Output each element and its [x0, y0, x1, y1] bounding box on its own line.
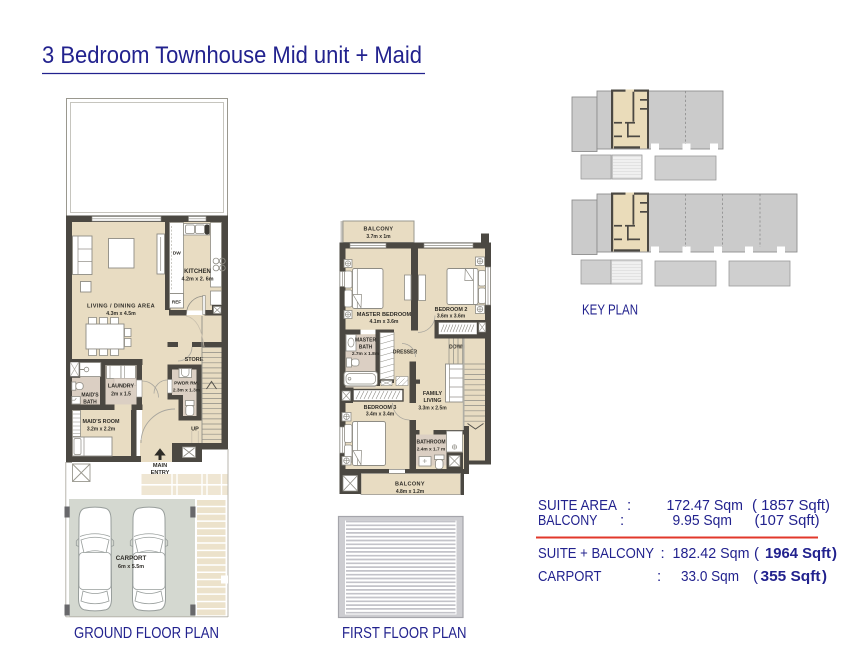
svg-text:): ) [822, 568, 827, 585]
svg-text:4.8m x 1.2m: 4.8m x 1.2m [396, 489, 425, 495]
svg-text:1964 Sqft: 1964 Sqft [765, 545, 831, 562]
svg-text:BEDROOM 3: BEDROOM 3 [364, 405, 397, 411]
svg-text:CARPORT: CARPORT [538, 568, 602, 585]
svg-text:355 Sqft: 355 Sqft [761, 568, 821, 585]
svg-text:4.1m x 3.6m: 4.1m x 3.6m [370, 319, 399, 325]
svg-text:(: ( [754, 545, 759, 562]
svg-text:9.95 Sqm: 9.95 Sqm [673, 512, 733, 529]
svg-text:3.4m x 3.4m: 3.4m x 3.4m [366, 412, 395, 418]
svg-text:LIVING: LIVING [424, 398, 442, 404]
svg-text::: : [657, 568, 661, 585]
svg-text:4.2m x 2. 6m: 4.2m x 2. 6m [181, 277, 213, 283]
svg-text:): ) [832, 545, 837, 562]
svg-text::: : [661, 545, 665, 562]
svg-text:DW: DW [173, 251, 181, 257]
svg-text:MASTER BEDROOM: MASTER BEDROOM [357, 312, 412, 318]
svg-text:FIRST FLOOR PLAN: FIRST FLOOR PLAN [342, 625, 467, 642]
svg-text:6m x 5.5m: 6m x 5.5m [118, 564, 144, 570]
svg-text:(107 Sqft): (107 Sqft) [755, 512, 820, 529]
svg-text:FAMILY: FAMILY [423, 391, 443, 397]
svg-text:LAUNDRY: LAUNDRY [108, 384, 135, 390]
svg-text:BATHROOM: BATHROOM [416, 440, 445, 446]
svg-text:4.3m x 4.5m: 4.3m x 4.5m [106, 311, 136, 317]
svg-text:MASTER: MASTER [355, 338, 377, 344]
svg-text:3.6m x 3.6m: 3.6m x 3.6m [437, 314, 466, 320]
svg-text:2.7m x 1.8m: 2.7m x 1.8m [352, 351, 379, 357]
svg-text:3.3m x 2.5m: 3.3m x 2.5m [418, 406, 447, 412]
svg-text:3.2m x 2.2m: 3.2m x 2.2m [87, 427, 116, 433]
svg-text:UP: UP [191, 427, 199, 433]
svg-text:MAIN: MAIN [153, 463, 167, 469]
svg-text:BALCONY: BALCONY [364, 227, 394, 233]
svg-text:SUITE + BALCONY: SUITE + BALCONY [538, 545, 654, 562]
svg-text:2.3m x 1.3m: 2.3m x 1.3m [173, 388, 200, 394]
svg-text::: : [627, 497, 631, 514]
svg-text:MAID'S: MAID'S [81, 393, 99, 399]
svg-text:BATH: BATH [83, 400, 97, 406]
svg-text:BATH: BATH [359, 345, 373, 351]
svg-text:KITCHEN: KITCHEN [184, 269, 211, 275]
svg-text:LIVING / DINING AREA: LIVING / DINING AREA [87, 304, 155, 310]
svg-text:PWDR RM.: PWDR RM. [174, 381, 199, 387]
svg-text:MAID'S ROOM: MAID'S ROOM [83, 419, 120, 425]
svg-text:GROUND FLOOR PLAN: GROUND FLOOR PLAN [74, 625, 219, 642]
svg-text:2m x 1.5: 2m x 1.5 [111, 392, 131, 398]
svg-text:BALCONY: BALCONY [395, 482, 425, 488]
svg-text:BALCONY: BALCONY [538, 512, 598, 529]
svg-text:CARPORT: CARPORT [116, 555, 147, 562]
svg-text:3.7m x 1m: 3.7m x 1m [366, 234, 391, 240]
svg-text:KEY PLAN: KEY PLAN [582, 303, 638, 319]
svg-text::: : [620, 512, 624, 529]
svg-text:33.0 Sqm: 33.0 Sqm [681, 568, 739, 585]
svg-text:2.4m x 1.7 m: 2.4m x 1.7 m [417, 447, 446, 453]
svg-text:REF: REF [172, 300, 181, 305]
svg-text:3 Bedroom Townhouse Mid unit +: 3 Bedroom Townhouse Mid unit + Maid [42, 42, 422, 69]
svg-text:(: ( [753, 568, 758, 585]
svg-text:182.42 Sqm: 182.42 Sqm [673, 545, 750, 562]
svg-text:STORE: STORE [185, 357, 204, 363]
svg-text:ENTRY: ENTRY [151, 470, 170, 476]
svg-text:BEDROOM 2: BEDROOM 2 [435, 307, 468, 313]
